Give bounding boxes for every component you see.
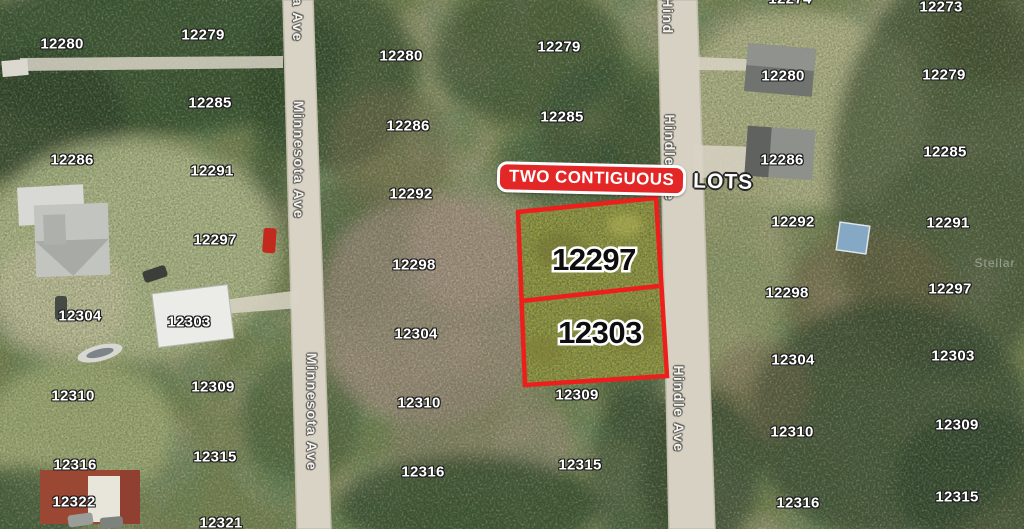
aerial-map: 12297 12303 a AveMinnesota AveMinnesota … bbox=[0, 0, 1024, 529]
highlighted-lots: 12297 12303 bbox=[500, 190, 685, 400]
lot-number-12297: 12297 bbox=[552, 242, 636, 277]
lot-number-12303: 12303 bbox=[558, 315, 642, 350]
blue-tarp-shed bbox=[836, 222, 870, 254]
gray-car bbox=[100, 516, 124, 529]
shed-roof bbox=[1, 59, 28, 77]
satellite-imagery: 12297 12303 bbox=[0, 0, 1024, 529]
mobile-home-roof bbox=[152, 285, 234, 348]
dark-car bbox=[55, 296, 67, 320]
red-car bbox=[262, 228, 277, 254]
